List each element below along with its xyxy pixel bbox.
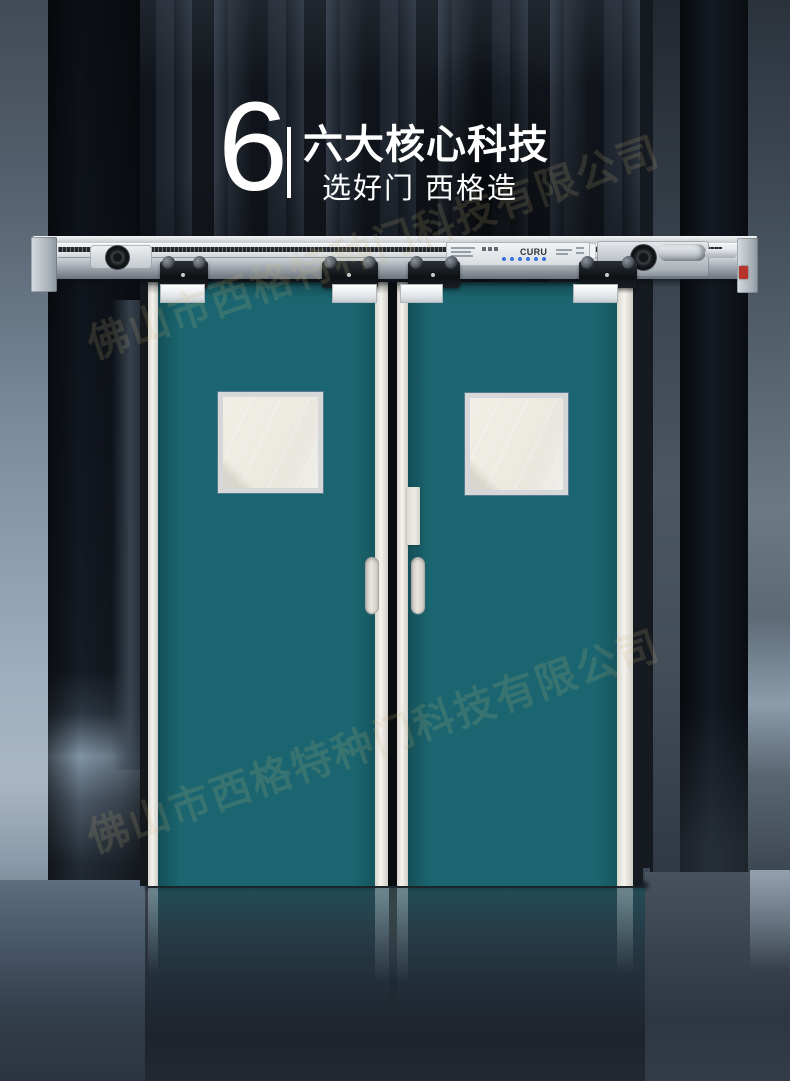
controller-fine-print <box>556 253 568 255</box>
right-black-pillar <box>680 0 748 880</box>
controller-fine-print <box>451 251 471 253</box>
header-big-number: 6 <box>218 84 288 210</box>
page-title: 六大核心科技 <box>303 112 549 170</box>
door-left-handle <box>365 557 379 614</box>
door-right-meeting-stile <box>397 282 408 886</box>
header-divider <box>287 127 291 198</box>
roller-wheel <box>363 256 376 269</box>
door-right <box>397 282 643 886</box>
roller-wheel <box>445 256 458 269</box>
controller-fine-print <box>451 247 475 249</box>
roller-wheel <box>410 256 423 269</box>
motor-cylinder <box>658 244 706 261</box>
door-right-outer-shadow <box>633 282 643 886</box>
door-gap <box>388 282 397 886</box>
window-glass <box>470 398 563 490</box>
end-stop-red-indicator <box>739 266 748 279</box>
status-led <box>526 257 530 261</box>
gap-reflection <box>389 888 397 1008</box>
controller-icon <box>494 247 498 251</box>
corridor-pillar-edge <box>112 300 142 770</box>
bracket-bolt <box>347 273 351 277</box>
right-light-wall <box>748 0 790 880</box>
status-led <box>502 257 506 261</box>
door-mounting-plate <box>400 284 443 303</box>
floor-light-streak <box>750 870 790 970</box>
right-gray-pillar <box>653 0 681 880</box>
controller-icon <box>482 247 486 251</box>
roller-wheel <box>622 256 635 269</box>
bracket-bolt <box>181 273 185 277</box>
status-led <box>534 257 538 261</box>
door-left <box>148 282 388 886</box>
controller-icon <box>488 247 492 251</box>
roller-wheel <box>581 256 594 269</box>
edge-reflection-right <box>617 888 633 973</box>
door-left-outer-shadow <box>140 282 148 886</box>
motor-rod <box>705 249 737 258</box>
door-mounting-plate <box>332 284 377 303</box>
rail-shadow <box>40 279 752 287</box>
roller-wheel <box>162 256 175 269</box>
controller-fine-print <box>576 252 584 254</box>
door-mounting-plate <box>160 284 205 303</box>
lock-plate <box>407 487 420 545</box>
bracket-bolt <box>605 273 609 277</box>
bracket-bolt <box>431 273 435 277</box>
controller-unit: CURU <box>446 242 590 266</box>
door-left-edge-strip <box>148 282 158 886</box>
product-scene: CURU 佛山市西格特种门科技有限公司 佛山市西格特种门科技有限公司 6 六大核… <box>0 0 790 1081</box>
roller-wheel <box>324 256 337 269</box>
door-right-edge-strip <box>617 282 633 886</box>
door-right-window <box>465 393 568 495</box>
door-right-panel <box>408 282 617 886</box>
status-led <box>510 257 514 261</box>
status-led <box>518 257 522 261</box>
idler-pulley-wheel <box>105 245 130 270</box>
roller-wheel <box>193 256 206 269</box>
status-led <box>542 257 546 261</box>
controller-brand-label: CURU <box>520 247 547 257</box>
door-left-panel <box>158 282 375 886</box>
window-glass <box>223 397 318 488</box>
door-left-window <box>218 392 323 493</box>
rail-end-cap-left <box>31 237 57 292</box>
edge-reflection-left <box>148 888 158 973</box>
controller-fine-print <box>576 247 584 249</box>
door-right-handle <box>411 557 425 614</box>
controller-fine-print <box>556 249 572 251</box>
floor-left <box>0 880 145 1081</box>
door-mounting-plate <box>573 284 618 303</box>
page-subtitle: 选好门 西格造 <box>322 165 518 207</box>
